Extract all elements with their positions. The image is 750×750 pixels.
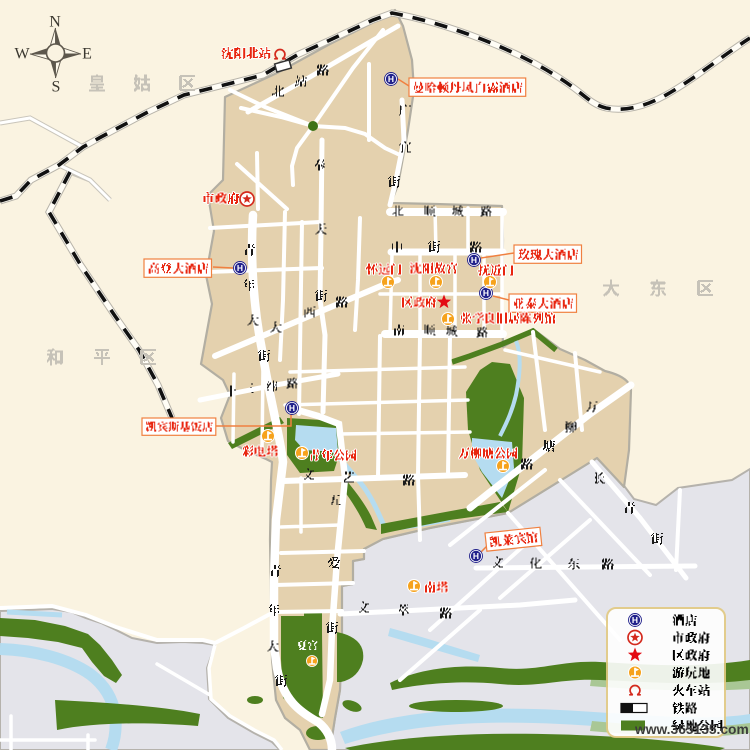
svg-text:H: H bbox=[388, 74, 394, 84]
svg-text:H: H bbox=[289, 403, 295, 413]
svg-text:H: H bbox=[471, 255, 477, 265]
svg-text:H: H bbox=[632, 615, 638, 625]
svg-text:W: W bbox=[14, 46, 30, 63]
svg-text:H: H bbox=[483, 288, 489, 298]
svg-text:H: H bbox=[237, 263, 243, 273]
svg-text:N: N bbox=[49, 14, 61, 31]
svg-text:E: E bbox=[82, 46, 92, 63]
svg-text:www.365135.com: www.365135.com bbox=[634, 722, 749, 737]
svg-text:H: H bbox=[473, 551, 479, 561]
svg-text:S: S bbox=[52, 79, 61, 96]
